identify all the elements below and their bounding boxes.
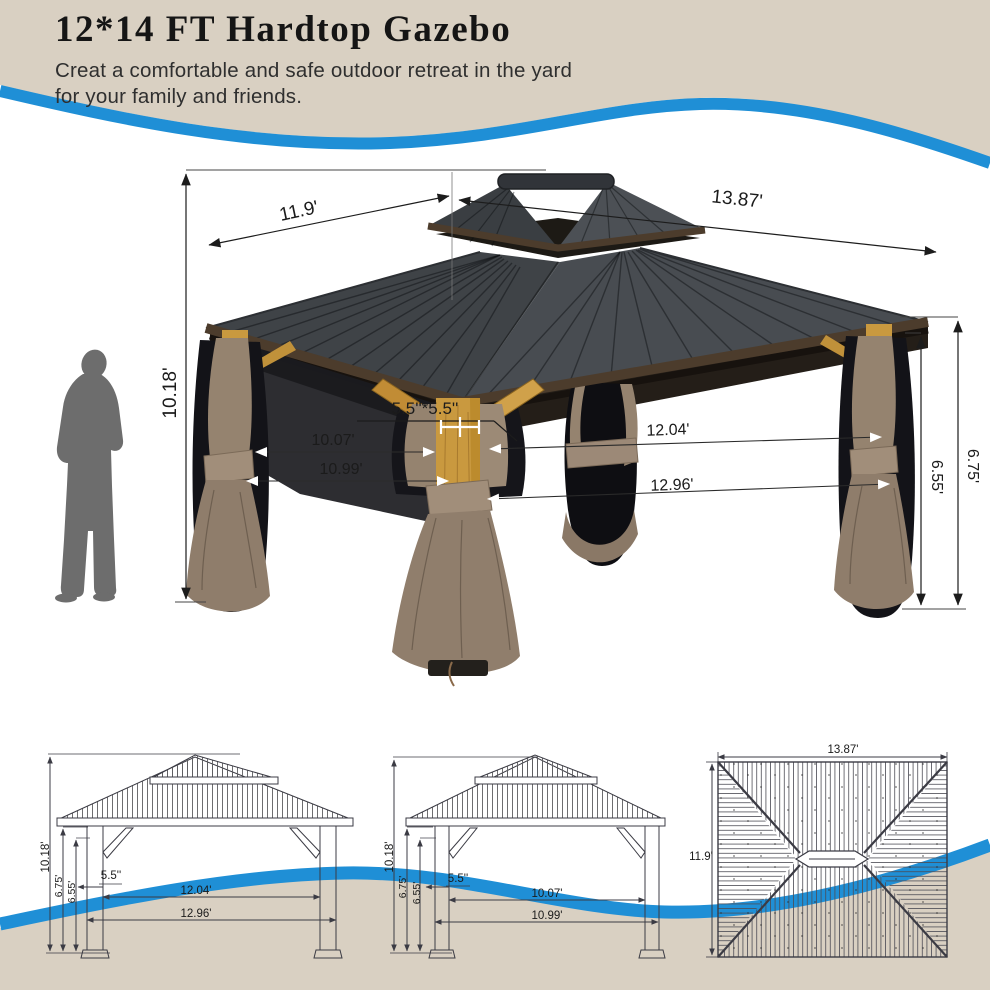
front-dim-inner-height-label: 6.55' [66, 881, 78, 903]
person-silhouette [55, 347, 123, 603]
front-dim-inner-width-label: 12.04' [181, 885, 212, 897]
dim-eave-height-label: 6.75' [963, 449, 981, 483]
dim-outer-depth-label: 10.99' [319, 461, 362, 479]
front-post [372, 379, 544, 686]
infographic-graphics [0, 0, 990, 990]
gazebo-photo-illustration [186, 174, 928, 686]
front-dim-eave-height-label: 6.75' [53, 875, 65, 897]
top-dim-depth-label: 11.9' [689, 851, 713, 863]
gazebo-product-infographic: 12*14 FT Hardtop Gazebo Creat a comforta… [0, 0, 990, 990]
side-dim-inner-depth-label: 10.07' [532, 888, 563, 900]
dim-inner-depth-label: 10.07' [311, 432, 354, 450]
front-dim-post-label: 5.5'' [101, 870, 121, 882]
dim-inner-width-label: 12.04' [646, 421, 690, 440]
curtain-bundle-rear [562, 382, 638, 566]
side-dim-total-height-label: 10.18' [384, 842, 396, 873]
side-dim-eave-height-label: 6.75' [397, 876, 409, 898]
dim-total-height-label: 10.18' [160, 367, 182, 418]
dim-post-section-label: 5.5''*5.5'' [392, 399, 459, 419]
side-dim-inner-height-label: 6.55' [411, 882, 423, 904]
top-view-drawing [706, 752, 947, 957]
dim-inner-height-label: 6.55' [927, 460, 945, 494]
side-dim-outer-depth-label: 10.99' [532, 910, 563, 922]
header: 12*14 FT Hardtop Gazebo Creat a comforta… [55, 10, 572, 110]
subtitle-line-1: Creat a comfortable and safe outdoor ret… [55, 58, 572, 84]
roof-cap [498, 174, 614, 189]
subtitle-line-2: for your family and friends. [55, 84, 572, 110]
top-dim-width-label: 13.87' [828, 744, 859, 756]
curtain-bundle-right [820, 324, 915, 618]
page-subtitle: Creat a comfortable and safe outdoor ret… [55, 58, 572, 110]
front-dim-total-height-label: 10.18' [40, 842, 52, 873]
dim-outer-width-label: 12.96' [650, 476, 694, 495]
side-dim-post-label: 5.5'' [448, 873, 468, 885]
page-title: 12*14 FT Hardtop Gazebo [55, 10, 572, 51]
front-dim-outer-width-label: 12.96' [181, 908, 212, 920]
